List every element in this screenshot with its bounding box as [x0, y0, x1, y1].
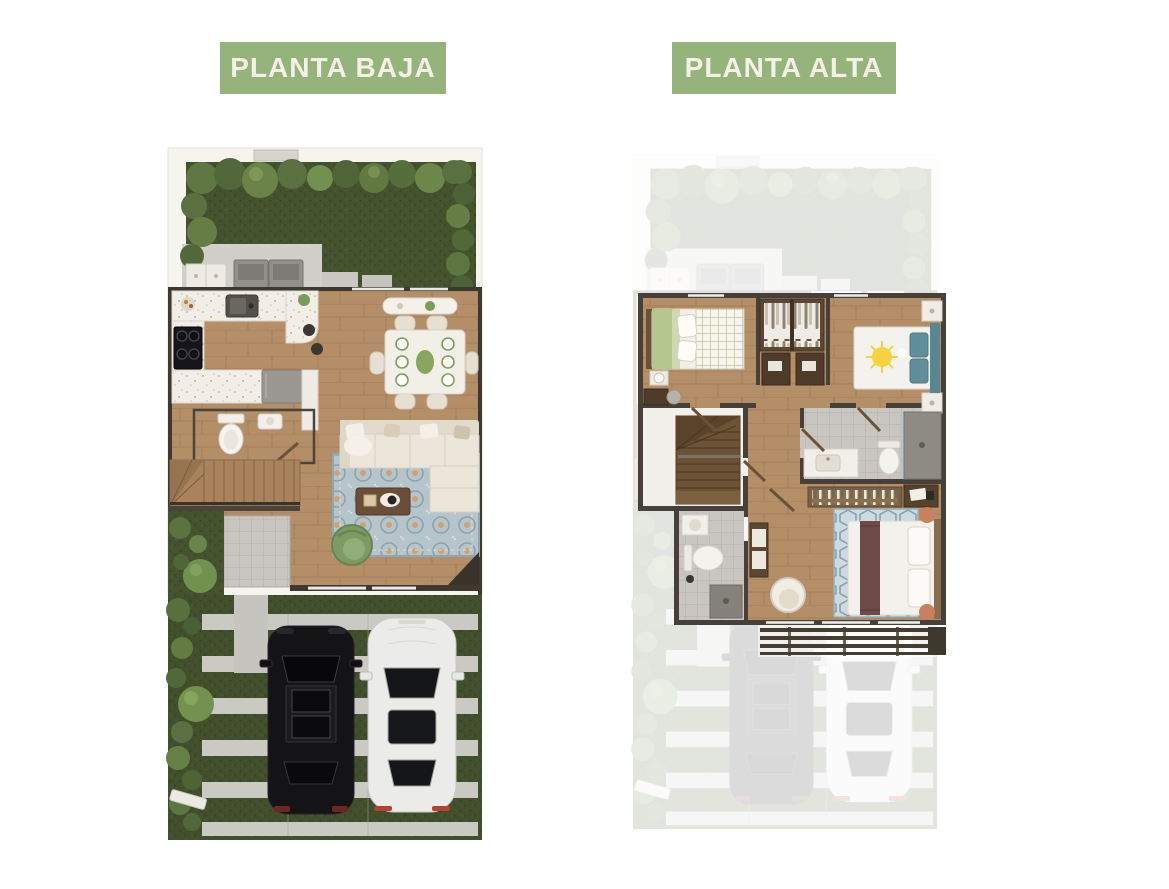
bedroom-window [834, 294, 868, 297]
toilet [684, 545, 692, 571]
round-cushion [919, 507, 935, 523]
floorplans-graphic [0, 0, 1169, 889]
pillow [677, 340, 697, 362]
pillow [908, 569, 930, 607]
ground-floor-plan [166, 148, 482, 840]
balcony-window [766, 621, 814, 624]
plush-toy [897, 348, 907, 358]
balcony-window [822, 621, 870, 624]
round-cushion [919, 604, 935, 620]
pillow [908, 527, 930, 565]
laptop [768, 361, 782, 371]
desk [644, 389, 668, 405]
book [909, 488, 926, 501]
toilet [878, 441, 900, 448]
lamp [654, 373, 664, 383]
upper-floor-plan [638, 293, 946, 657]
wardrobe-clothes [794, 303, 820, 347]
stair-railing [678, 455, 740, 458]
bedroom-window [688, 294, 724, 297]
balcony-pergola [758, 625, 946, 657]
upper-staircase [676, 416, 740, 504]
pillow [677, 314, 697, 338]
teal-pillow [910, 333, 928, 357]
headboard [934, 519, 941, 619]
pergola-post [928, 627, 946, 655]
wardrobe-clothes [764, 303, 790, 347]
balcony-window [878, 621, 920, 624]
teal-headboard [930, 323, 940, 393]
floorplan-page: PLANTA BAJA PLANTA ALTA [0, 0, 1169, 889]
master-armchair [771, 578, 805, 612]
laptop [802, 361, 816, 371]
teal-pillow [910, 359, 928, 383]
desk-chair [667, 390, 681, 404]
toilet-brush [686, 575, 694, 583]
